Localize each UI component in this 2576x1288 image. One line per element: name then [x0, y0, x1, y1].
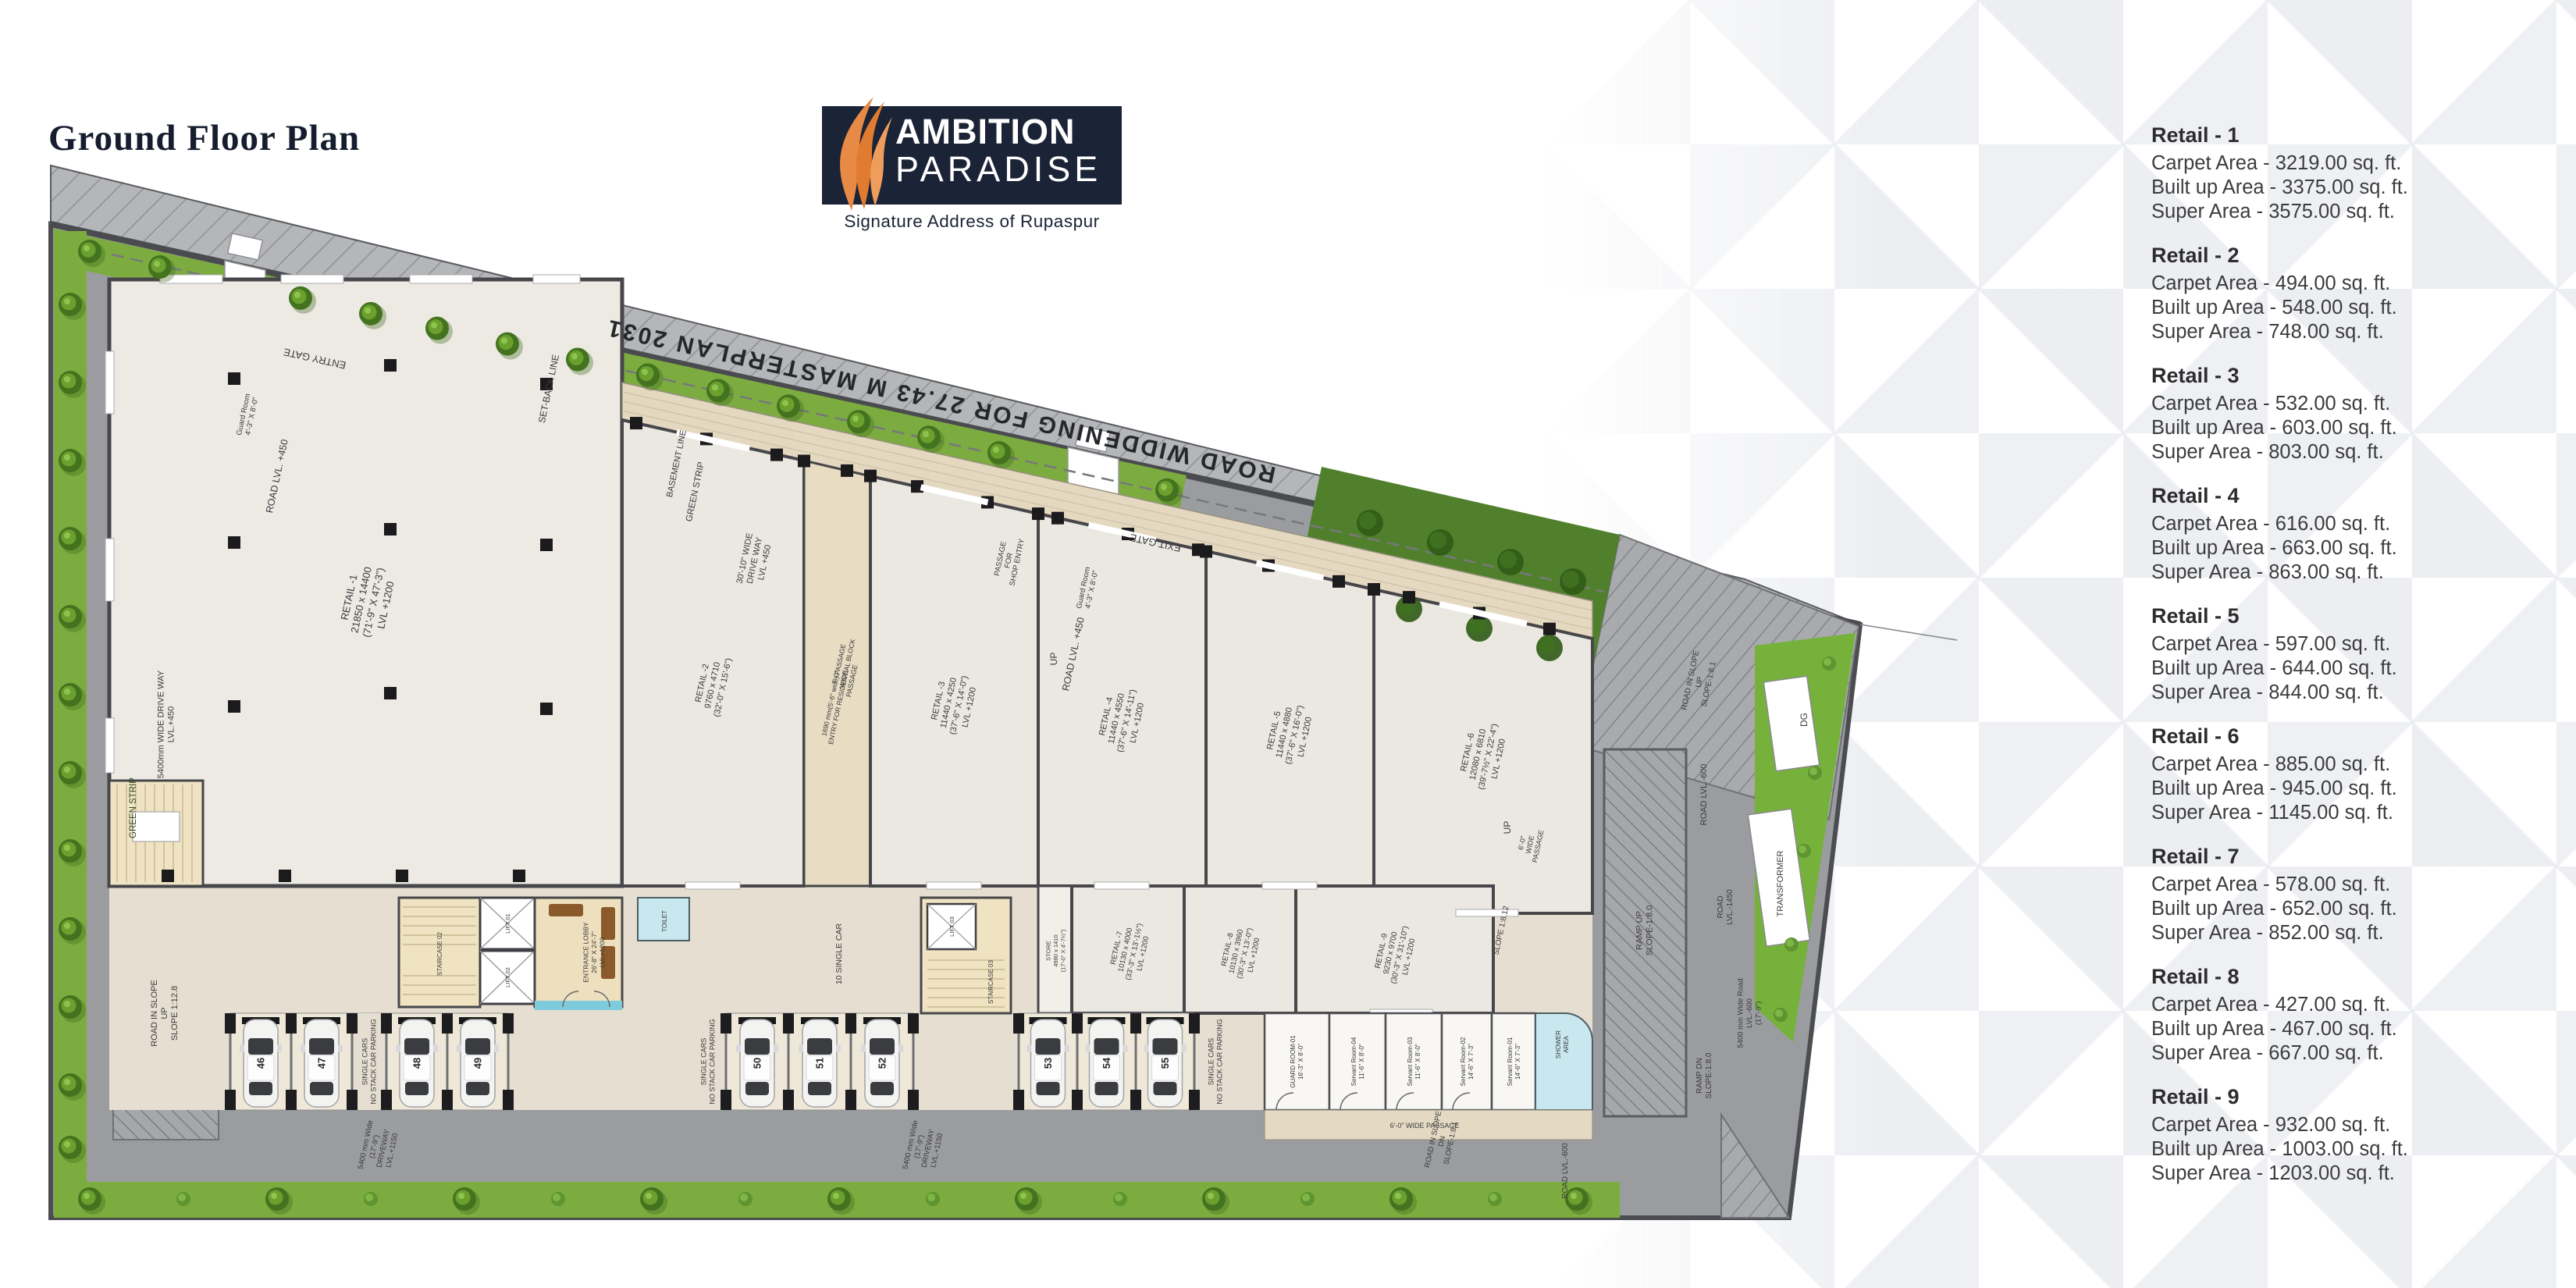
retail-name: Retail - 3	[2151, 364, 2565, 388]
tree-icon	[1427, 529, 1453, 556]
tree-icon	[1300, 1192, 1315, 1206]
tree-icon	[1560, 568, 1586, 595]
column	[162, 870, 174, 882]
retail-summary-item-3: Retail - 3 Carpet Area - 532.00 sq. ft. …	[2151, 364, 2565, 464]
parking-number: 48	[411, 1058, 423, 1069]
tree-icon	[1822, 656, 1836, 671]
staircase-01	[109, 781, 203, 886]
column	[279, 870, 291, 882]
retail-summary-item-1: Retail - 1 Carpet Area - 3219.00 sq. ft.…	[2151, 123, 2565, 224]
tree-icon	[1357, 510, 1383, 536]
tree-icon	[926, 1192, 940, 1206]
carpet-area: Carpet Area - 616.00 sq. ft.	[2151, 512, 2565, 536]
plan-label-road-lvl600-a: ROAD LVL.-600	[1699, 764, 1709, 826]
floor-plan: 46474849505152535455 ROAD WIDDENING FOR …	[43, 101, 1987, 1241]
plan-label-sr03: Servant Room-0311'-6" X 8'-0"	[1407, 1037, 1421, 1086]
super-area: Super Area - 1203.00 sq. ft.	[2151, 1162, 2565, 1186]
tree-icon	[1536, 635, 1563, 661]
unit-retail-2	[622, 420, 804, 886]
column	[384, 687, 397, 699]
plan-label-staircase03: STAIRCASE 03	[987, 960, 994, 1004]
plan-label-green-strip-b: GREEN STRIP	[129, 777, 138, 838]
retail-name: Retail - 1	[2151, 123, 2565, 148]
parking-number: 50	[752, 1058, 763, 1069]
built-up-area: Built up Area - 3375.00 sq. ft.	[2151, 176, 2565, 200]
super-area: Super Area - 852.00 sq. ft.	[2151, 921, 2565, 945]
built-up-area: Built up Area - 945.00 sq. ft.	[2151, 777, 2565, 801]
column	[1543, 623, 1556, 635]
plan-label-lift03: LIFT 03	[948, 916, 955, 937]
retail-summary-item-9: Retail - 9 Carpet Area - 932.00 sq. ft. …	[2151, 1085, 2565, 1186]
tree-icon	[1808, 766, 1822, 780]
retail-summary-item-8: Retail - 8 Carpet Area - 427.00 sq. ft. …	[2151, 965, 2565, 1066]
retail-name: Retail - 6	[2151, 724, 2565, 749]
built-up-area: Built up Area - 1003.00 sq. ft.	[2151, 1137, 2565, 1162]
parking-number: 53	[1042, 1058, 1054, 1069]
built-up-area: Built up Area - 644.00 sq. ft.	[2151, 656, 2565, 681]
retail-summary-item-4: Retail - 4 Carpet Area - 616.00 sq. ft. …	[2151, 484, 2565, 585]
retail-summary-item-6: Retail - 6 Carpet Area - 885.00 sq. ft. …	[2151, 724, 2565, 825]
super-area: Super Area - 3575.00 sq. ft.	[2151, 200, 2565, 224]
super-area: Super Area - 667.00 sq. ft.	[2151, 1041, 2565, 1066]
plan-label-lift02: LIFT 02	[504, 967, 511, 987]
retail-name: Retail - 4	[2151, 484, 2565, 508]
tree-icon	[1797, 844, 1811, 858]
entrance-lobby	[535, 898, 622, 1010]
built-up-area: Built up Area - 467.00 sq. ft.	[2151, 1017, 2565, 1041]
parking-number: 55	[1159, 1058, 1171, 1069]
built-up-area: Built up Area - 603.00 sq. ft.	[2151, 416, 2565, 440]
plan-label-dg: DG	[1799, 713, 1809, 727]
staircase-03-block	[921, 898, 1011, 1013]
super-area: Super Area - 803.00 sq. ft.	[2151, 440, 2565, 464]
retail-name: Retail - 9	[2151, 1085, 2565, 1109]
retail-name: Retail - 7	[2151, 845, 2565, 869]
column	[1200, 546, 1212, 558]
column	[1332, 575, 1345, 588]
parking-number: 54	[1101, 1057, 1112, 1069]
column	[770, 449, 783, 461]
tree-icon	[1774, 1008, 1788, 1022]
column	[228, 372, 240, 385]
carpet-area: Carpet Area - 932.00 sq. ft.	[2151, 1113, 2565, 1137]
retail-summary-item-2: Retail - 2 Carpet Area - 494.00 sq. ft. …	[2151, 244, 2565, 344]
parking-number: 52	[877, 1058, 888, 1069]
column	[798, 454, 810, 467]
column	[864, 470, 877, 482]
plan-label-ten-single: 10 SINGLE CAR	[834, 923, 844, 984]
carpet-area: Carpet Area - 885.00 sq. ft.	[2151, 753, 2565, 777]
tree-icon	[738, 1192, 753, 1206]
servant-rooms-row	[1265, 1013, 1535, 1110]
parking-number: 51	[814, 1058, 826, 1069]
carpet-area: Carpet Area - 3219.00 sq. ft.	[2151, 151, 2565, 176]
tree-icon	[1113, 1192, 1127, 1206]
column	[384, 359, 397, 372]
retail-summary-item-7: Retail - 7 Carpet Area - 578.00 sq. ft. …	[2151, 845, 2565, 945]
plan-label-up-b: UP	[1502, 821, 1513, 834]
column	[228, 700, 240, 713]
parking-number: 46	[255, 1058, 267, 1069]
retail-name: Retail - 8	[2151, 965, 2565, 989]
plan-label-up-a: UP	[1048, 653, 1059, 666]
parking-number: 47	[316, 1058, 328, 1069]
plan-label-sr02: Servant Room-0214'-6" X 7'-3"	[1460, 1037, 1475, 1086]
column	[540, 539, 553, 551]
built-up-area: Built up Area - 663.00 sq. ft.	[2151, 536, 2565, 560]
column	[1368, 583, 1380, 596]
retail-area-summary-panel: Retail - 1 Carpet Area - 3219.00 sq. ft.…	[2151, 123, 2565, 1205]
column	[540, 703, 553, 715]
super-area: Super Area - 748.00 sq. ft.	[2151, 320, 2565, 344]
column	[384, 523, 397, 535]
column	[396, 870, 408, 882]
super-area: Super Area - 844.00 sq. ft.	[2151, 681, 2565, 705]
carpet-area: Carpet Area - 597.00 sq. ft.	[2151, 632, 2565, 656]
column	[1051, 512, 1064, 525]
plan-label-sr04: Servant Room-0411'-6" X 8'-0"	[1350, 1037, 1365, 1086]
carpet-area: Carpet Area - 578.00 sq. ft.	[2151, 873, 2565, 897]
tree-icon	[1488, 1192, 1502, 1206]
retail-name: Retail - 2	[2151, 244, 2565, 268]
carpet-area: Carpet Area - 494.00 sq. ft.	[2151, 272, 2565, 296]
tree-icon	[364, 1192, 378, 1206]
column	[228, 536, 240, 549]
plan-label-road-lvl600-b: ROAD LVL.-600	[1561, 1143, 1570, 1199]
column	[841, 464, 853, 477]
super-area: Super Area - 1145.00 sq. ft.	[2151, 801, 2565, 825]
plan-label-ramp-up: RAMP UPSLOPE-1:8.0	[1635, 906, 1655, 956]
shower-area-block	[1535, 1013, 1592, 1110]
carpet-area: Carpet Area - 532.00 sq. ft.	[2151, 392, 2565, 416]
tree-icon	[176, 1192, 190, 1206]
retail-name: Retail - 5	[2151, 604, 2565, 628]
built-up-area: Built up Area - 548.00 sq. ft.	[2151, 296, 2565, 320]
parking-number: 49	[472, 1058, 484, 1069]
carpet-area: Carpet Area - 427.00 sq. ft.	[2151, 993, 2565, 1017]
tree-icon	[1784, 938, 1799, 952]
super-area: Super Area - 863.00 sq. ft.	[2151, 560, 2565, 585]
retail-summary-item-5: Retail - 5 Carpet Area - 597.00 sq. ft. …	[2151, 604, 2565, 705]
column	[513, 870, 525, 882]
plan-label-staircase02: STAIRCASE 02	[436, 932, 443, 976]
plan-label-toilet: TOILET	[661, 910, 668, 932]
tree-icon	[1497, 549, 1524, 575]
survey-line	[1860, 624, 1957, 640]
plan-label-sr01: Servant Room-0114'-6" X 7'-3"	[1507, 1037, 1521, 1086]
column	[1403, 591, 1415, 603]
column	[1032, 507, 1044, 520]
tree-icon	[551, 1192, 565, 1206]
plan-label-transformer: TRANSFORMER	[1776, 850, 1785, 916]
plan-label-ramp-dn: RAMP DNSLOPE-1:8.0	[1695, 1052, 1713, 1098]
plan-label-lift01: LIFT 01	[504, 913, 511, 934]
built-up-area: Built up Area - 652.00 sq. ft.	[2151, 897, 2565, 921]
column	[630, 417, 642, 429]
